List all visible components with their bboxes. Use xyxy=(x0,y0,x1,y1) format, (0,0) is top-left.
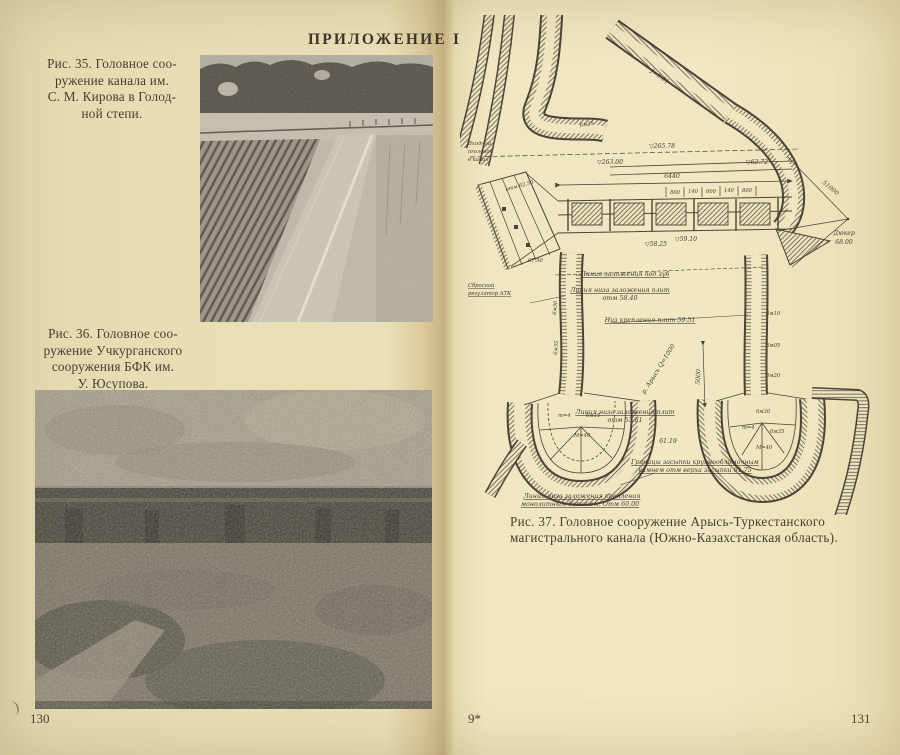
svg-text:оголовок: оголовок xyxy=(468,149,493,155)
svg-text:600: 600 xyxy=(706,189,717,195)
caption-line: ружение канала им. xyxy=(24,73,200,90)
label-river: р. Арысь Q=1000 xyxy=(641,343,677,395)
photo-fig35 xyxy=(200,55,433,322)
svg-text:6м35: 6м35 xyxy=(770,429,784,435)
svg-text:800: 800 xyxy=(670,190,681,196)
svg-text:68.00: 68.00 xyxy=(835,239,853,246)
svg-text:6м15: 6м15 xyxy=(586,413,600,419)
book-spread: ПРИЛОЖЕНИЕ I Рис. 35. Головное соо- руже… xyxy=(0,0,900,755)
label-radius: 51000 xyxy=(821,179,840,197)
caption-line: ной степи. xyxy=(24,106,200,123)
caption-fig35: Рис. 35. Головное соо- ружение канала им… xyxy=(24,56,200,122)
caption-fig36: Рис. 36. Головное соо- ружение Учкурганс… xyxy=(22,326,204,392)
svg-text:М=40: М=40 xyxy=(755,445,773,451)
diagram-fig37: Входной оголовок в канал Сбросной регуля… xyxy=(460,15,880,515)
svg-text:монолитным бетоном. Отм 60.00: монолитным бетоном. Отм 60.00 xyxy=(521,501,639,508)
svg-text:камнем отм верха засыпки 61.75: камнем отм верха засыпки 61.75 xyxy=(638,467,751,474)
label-elev-6272: ▽62.72 xyxy=(746,159,768,166)
svg-text:m=4: m=4 xyxy=(742,425,755,431)
dam-gates xyxy=(510,161,792,267)
label-line-5840: Линия низа заложения плит xyxy=(569,287,669,294)
caption-line: С. М. Кирова в Голод- xyxy=(24,89,200,106)
label-elev-5825: ▽58.25 xyxy=(645,241,667,248)
label-elev-26300: ▽263.00 xyxy=(597,159,623,166)
caption-line: Рис. 36. Головное соо- xyxy=(22,326,204,343)
label-inlet: Входной xyxy=(467,141,491,147)
svg-text:800: 800 xyxy=(742,188,753,194)
svg-text:6м10: 6м10 xyxy=(766,311,781,317)
page-number-left: 130 xyxy=(30,711,50,727)
svg-text:140: 140 xyxy=(724,188,735,194)
svg-text:6м05: 6м05 xyxy=(766,343,780,349)
label-6119: 61.19 xyxy=(659,438,677,445)
label-line-6000: Линия низа заложения крепления xyxy=(522,493,640,500)
svg-text:140: 140 xyxy=(688,189,699,195)
svg-text:5м20: 5м20 xyxy=(766,373,781,379)
caption-line: сооружения БФК им. xyxy=(22,359,204,376)
corner-mark: ) xyxy=(11,699,21,717)
label-granicy: Границы засыпки крупнообломочным xyxy=(630,459,759,466)
label-line-zub: Линия заложения под зуб xyxy=(580,271,670,278)
caption-line: Рис. 37. Головное сооружение Арысь-Турке… xyxy=(510,514,878,530)
svg-text:отм 58.40: отм 58.40 xyxy=(602,295,637,302)
svg-text:m=4: m=4 xyxy=(558,413,571,419)
page-number-right: 131 xyxy=(851,711,871,727)
label-elev-5910: ▽59.10 xyxy=(675,236,697,243)
svg-text:М=40: М=40 xyxy=(573,433,591,439)
label-dim-5000: 5000 xyxy=(694,369,702,385)
label-duker: Дюкер xyxy=(832,230,855,237)
caption-line: ружение Учкурганского xyxy=(22,343,204,360)
label-line-5951: Низ крепления плит 59.51 xyxy=(604,317,696,324)
label-dim-6440: 6440 xyxy=(664,173,680,180)
signature-mark: 9* xyxy=(468,711,481,727)
photo-fig36 xyxy=(35,390,432,709)
svg-text:6м30: 6м30 xyxy=(552,300,559,315)
label-spill-regulator: Сбросной xyxy=(468,282,494,289)
svg-text:в канал: в канал xyxy=(468,157,489,163)
caption-line: магистрального канала (Южно-Казахстанска… xyxy=(510,530,878,546)
svg-text:6м35: 6м35 xyxy=(553,341,560,356)
label-fan-top: отм 62.50 xyxy=(505,179,535,192)
label-elev-26578: ▽265.78 xyxy=(649,143,675,150)
caption-fig37: Рис. 37. Головное сооружение Арысь-Турке… xyxy=(510,514,878,546)
caption-line: Рис. 35. Головное соо- xyxy=(24,56,200,73)
svg-text:регулятор АТК: регулятор АТК xyxy=(468,291,512,297)
svg-text:6м30: 6м30 xyxy=(756,409,771,415)
page-title: ПРИЛОЖЕНИЕ I xyxy=(308,31,461,49)
svg-text:отм 53.61: отм 53.61 xyxy=(607,417,642,424)
label-fan-bot: 67.50 xyxy=(528,258,544,264)
